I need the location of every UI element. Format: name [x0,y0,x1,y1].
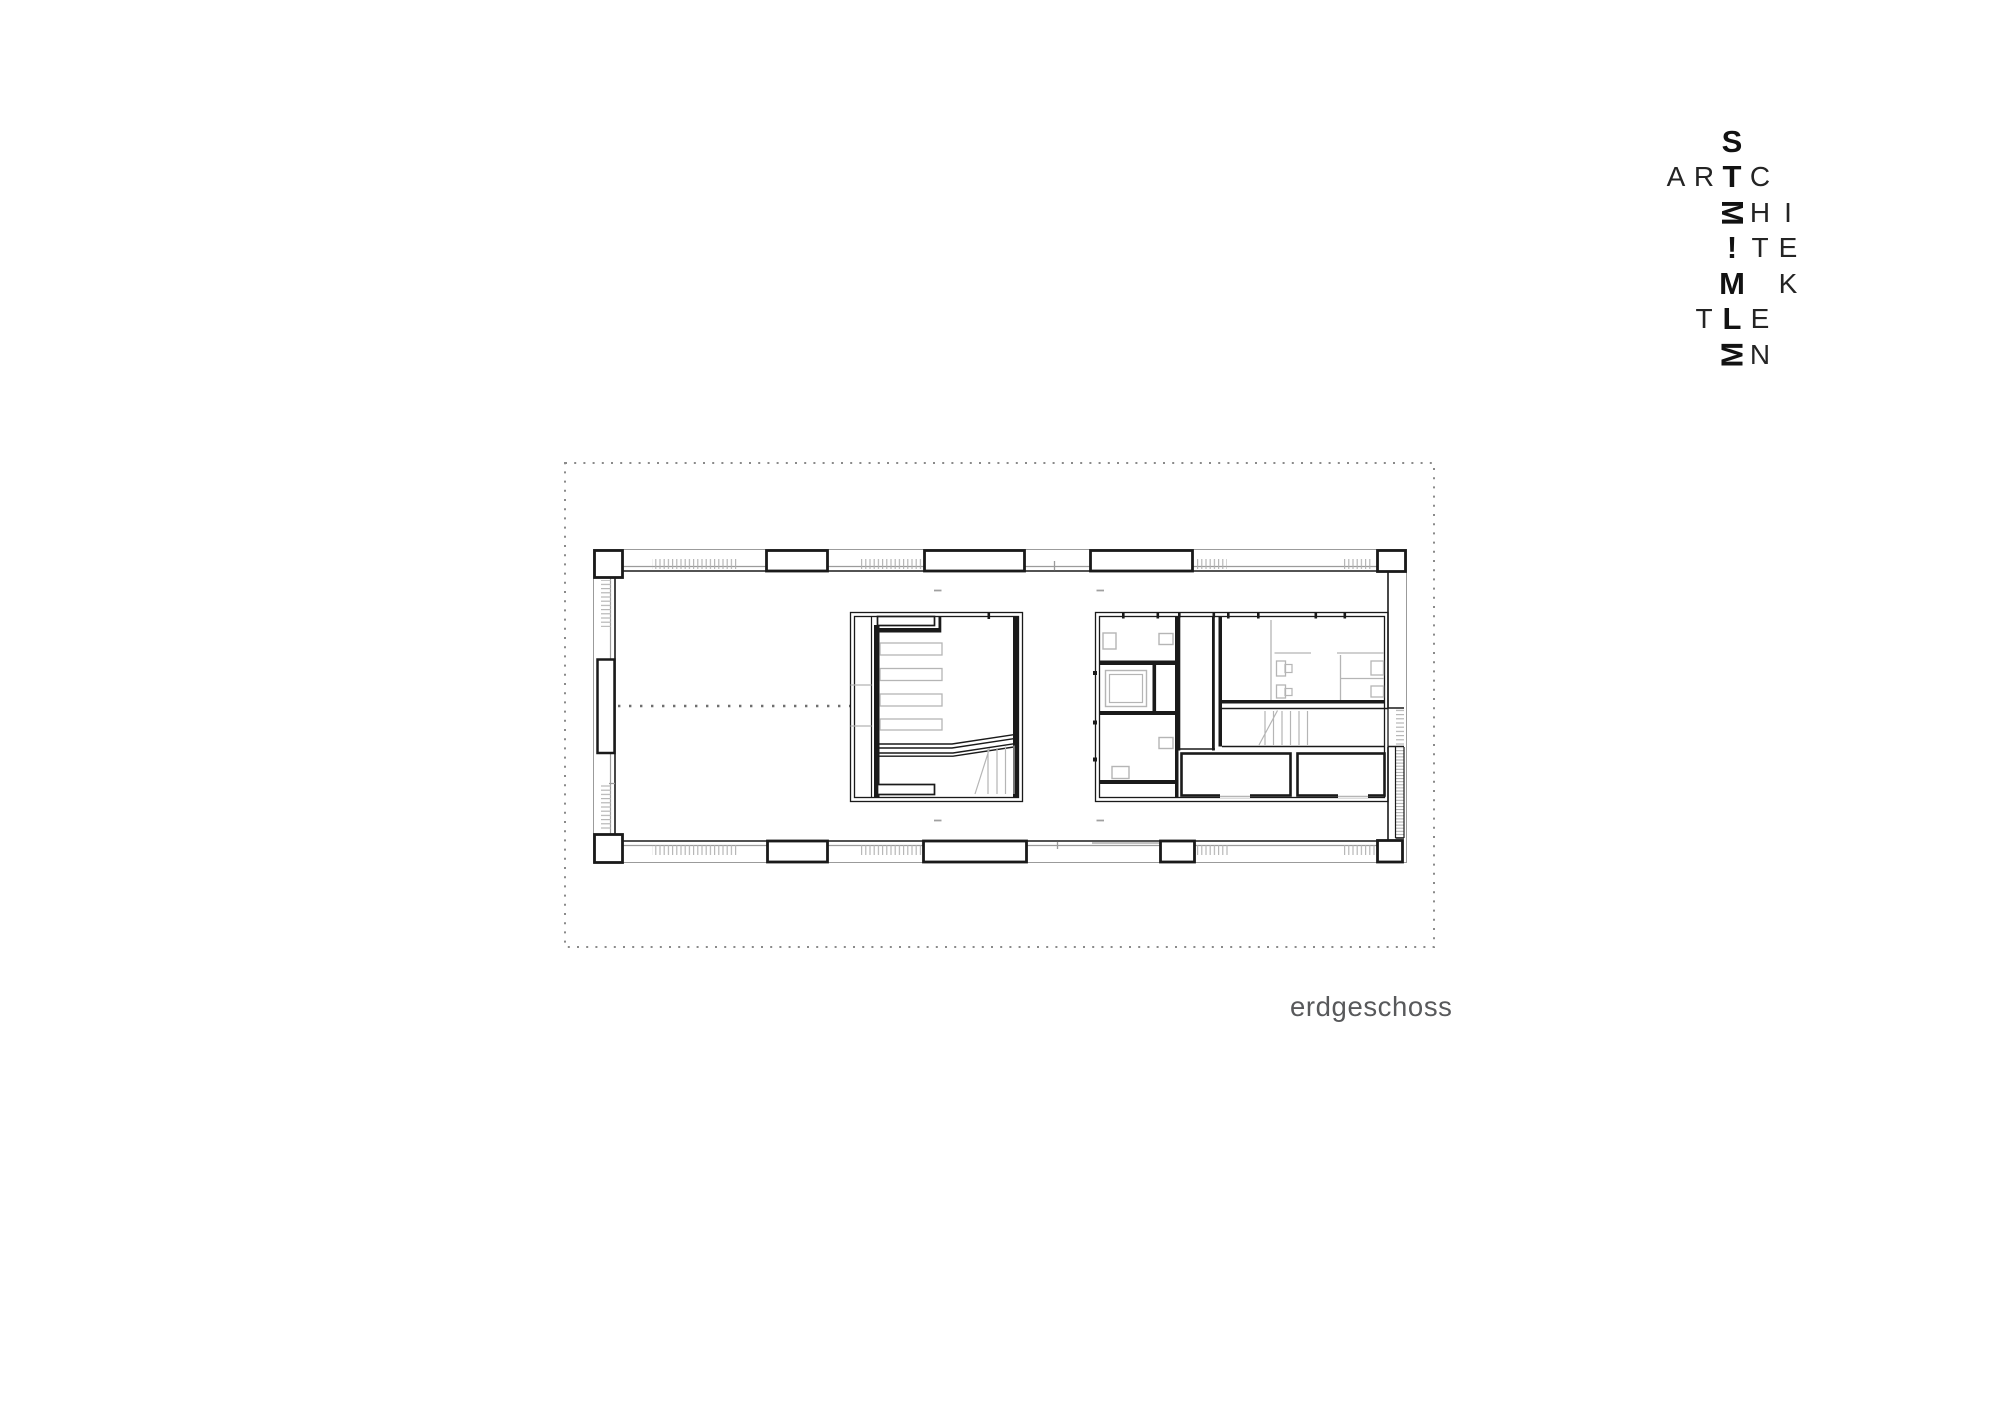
door-jambs [1122,613,1346,619]
wc-rooms [1093,617,1179,798]
stair-central [975,746,1014,795]
office-room [1219,617,1385,704]
shaft-corridor [1177,617,1215,751]
floor-plan-drawing [0,0,2000,1414]
stair-main [1219,704,1389,747]
floor-label: erdgeschoss [1290,991,1436,1023]
lower-rooms [1182,754,1385,799]
service-block [1093,613,1388,802]
page: { "logo": { "name": "STEIMLE ARCHITEKTEN… [0,0,2000,1414]
shower-tray [1106,671,1147,707]
auditorium-block [851,613,1023,802]
wall-piers [595,551,1406,863]
building-shell [593,549,1407,863]
window-hatching [601,559,1404,855]
bench-rows [880,643,942,730]
